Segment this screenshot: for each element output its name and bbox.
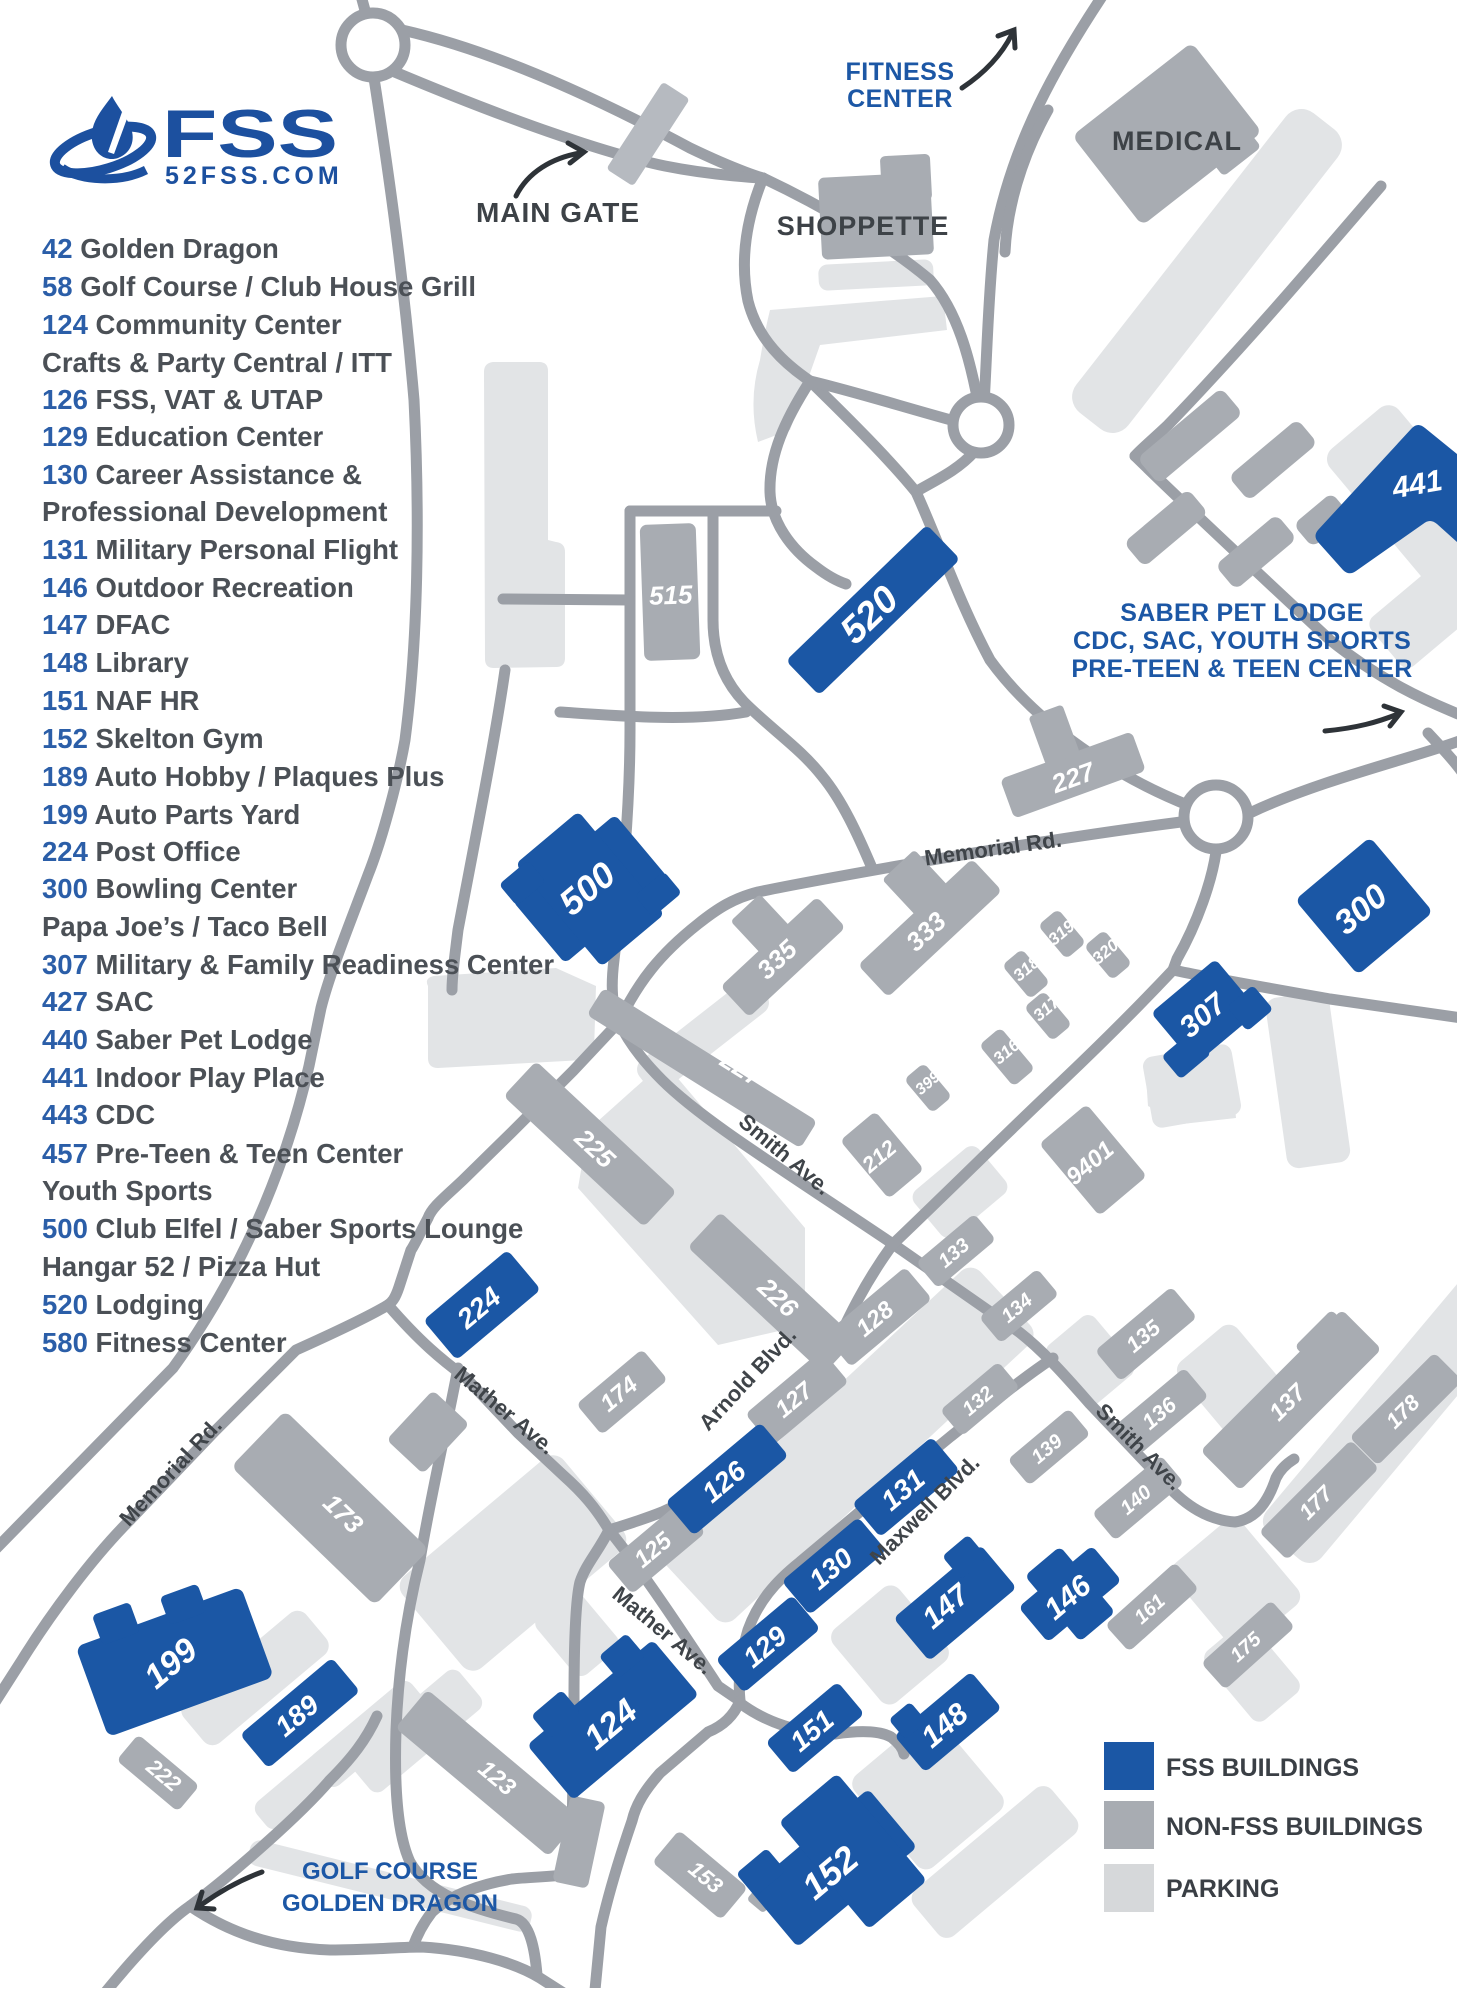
svg-text:PARKING: PARKING bbox=[1166, 1875, 1279, 1903]
svg-text:147 DFAC: 147 DFAC bbox=[42, 609, 171, 640]
svg-text:457 Pre-Teen & Teen Center: 457 Pre-Teen & Teen Center bbox=[42, 1138, 403, 1169]
svg-text:GOLDEN DRAGON: GOLDEN DRAGON bbox=[282, 1890, 498, 1917]
svg-text:NON-FSS BUILDINGS: NON-FSS BUILDINGS bbox=[1166, 1813, 1423, 1841]
svg-text:Professional Development: Professional Development bbox=[42, 496, 387, 527]
svg-text:52FSS.COM: 52FSS.COM bbox=[165, 162, 343, 190]
svg-text:Hangar 52 / Pizza Hut: Hangar 52 / Pizza Hut bbox=[42, 1251, 320, 1282]
svg-text:SABER PET LODGE: SABER PET LODGE bbox=[1120, 599, 1363, 627]
svg-text:146 Outdoor Recreation: 146 Outdoor Recreation bbox=[42, 572, 354, 603]
svg-text:189 Auto Hobby / Plaques Plus: 189 Auto Hobby / Plaques Plus bbox=[42, 761, 444, 792]
svg-text:Crafts & Party Central / ITT: Crafts & Party Central / ITT bbox=[42, 347, 392, 378]
svg-text:Youth Sports: Youth Sports bbox=[42, 1175, 213, 1206]
svg-text:148 Library: 148 Library bbox=[42, 647, 189, 678]
svg-text:307 Military & Family Readines: 307 Military & Family Readiness Center bbox=[42, 949, 554, 980]
svg-text:520 Lodging: 520 Lodging bbox=[42, 1289, 204, 1320]
svg-text:129 Education Center: 129 Education Center bbox=[42, 421, 323, 452]
svg-text:126 FSS, VAT & UTAP: 126 FSS, VAT & UTAP bbox=[42, 384, 323, 415]
svg-text:300 Bowling Center: 300 Bowling Center bbox=[42, 873, 298, 904]
svg-text:500 Club Elfel / Saber Sports: 500 Club Elfel / Saber Sports Lounge bbox=[42, 1213, 523, 1244]
svg-text:199 Auto Parts Yard: 199 Auto Parts Yard bbox=[42, 799, 300, 830]
svg-text:FITNESS: FITNESS bbox=[845, 58, 954, 86]
svg-text:42 Golden Dragon: 42 Golden Dragon bbox=[42, 233, 279, 264]
svg-text:515: 515 bbox=[648, 579, 693, 611]
svg-text:152 Skelton Gym: 152 Skelton Gym bbox=[42, 723, 264, 754]
svg-text:CDC, SAC, YOUTH SPORTS: CDC, SAC, YOUTH SPORTS bbox=[1073, 627, 1411, 655]
svg-text:Papa Joe’s / Taco Bell: Papa Joe’s / Taco Bell bbox=[42, 911, 328, 942]
svg-text:CENTER: CENTER bbox=[847, 85, 953, 113]
svg-text:FSS: FSS bbox=[162, 96, 338, 172]
svg-text:130 Career Assistance &: 130 Career Assistance & bbox=[42, 459, 362, 490]
svg-text:151 NAF HR: 151 NAF HR bbox=[42, 685, 200, 716]
svg-text:441 Indoor Play Place: 441 Indoor Play Place bbox=[42, 1062, 325, 1093]
svg-text:FSS BUILDINGS: FSS BUILDINGS bbox=[1166, 1754, 1359, 1782]
svg-text:PRE-TEEN & TEEN CENTER: PRE-TEEN & TEEN CENTER bbox=[1071, 655, 1412, 683]
svg-text:224 Post Office: 224 Post Office bbox=[42, 836, 241, 867]
svg-text:443 CDC: 443 CDC bbox=[42, 1099, 155, 1130]
svg-text:427 SAC: 427 SAC bbox=[42, 986, 154, 1017]
svg-text:440 Saber Pet Lodge: 440 Saber Pet Lodge bbox=[42, 1024, 313, 1055]
svg-text:MEDICAL: MEDICAL bbox=[1112, 126, 1242, 156]
svg-text:580 Fitness Center: 580 Fitness Center bbox=[42, 1327, 287, 1358]
svg-text:MAIN GATE: MAIN GATE bbox=[476, 197, 640, 228]
svg-text:58 Golf Course / Club House Gr: 58 Golf Course / Club House Grill bbox=[42, 271, 476, 302]
svg-text:131 Military Personal Flight: 131 Military Personal Flight bbox=[42, 534, 398, 565]
svg-text:124 Community Center: 124 Community Center bbox=[42, 309, 342, 340]
svg-text:SHOPPETTE: SHOPPETTE bbox=[777, 211, 950, 241]
svg-text:GOLF COURSE: GOLF COURSE bbox=[302, 1858, 478, 1885]
